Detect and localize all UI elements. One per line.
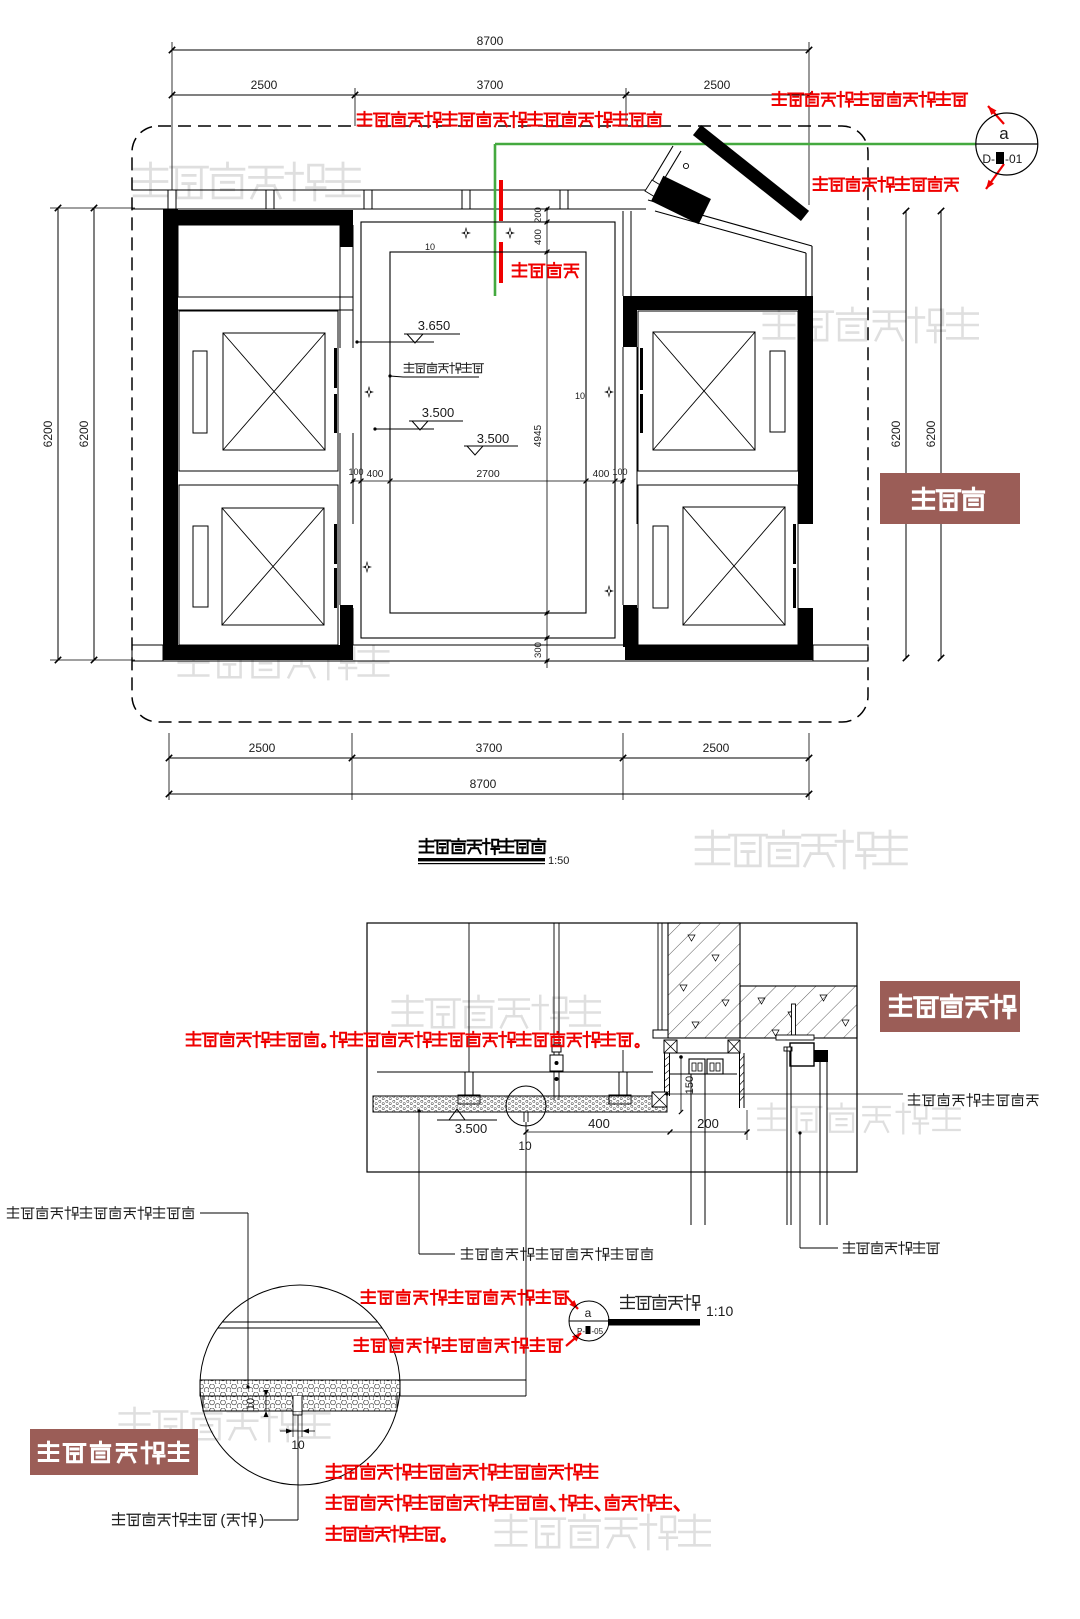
svg-text:3.500: 3.500: [422, 405, 455, 420]
svg-text:3700: 3700: [477, 78, 504, 92]
svg-text:300: 300: [533, 642, 544, 658]
svg-text:D-: D-: [982, 152, 995, 166]
svg-text:8700: 8700: [477, 34, 504, 48]
svg-text:6200: 6200: [889, 420, 903, 447]
svg-text:P-: P-: [577, 1327, 585, 1336]
svg-text:6200: 6200: [924, 420, 938, 447]
svg-text:100: 100: [612, 467, 627, 477]
svg-text:a: a: [585, 1306, 592, 1320]
svg-text:400: 400: [593, 469, 610, 480]
svg-text:4945: 4945: [533, 424, 544, 447]
svg-text:2700: 2700: [476, 468, 500, 480]
svg-text:3700: 3700: [476, 741, 503, 755]
svg-text:2500: 2500: [703, 741, 730, 755]
svg-text:2500: 2500: [251, 78, 278, 92]
svg-text:400: 400: [367, 469, 384, 480]
svg-text:a: a: [999, 124, 1009, 143]
svg-text:3.500: 3.500: [477, 431, 510, 446]
svg-text:3.650: 3.650: [418, 318, 451, 333]
svg-text:150: 150: [684, 1076, 696, 1094]
svg-text:8700: 8700: [470, 777, 497, 791]
svg-text:-05: -05: [592, 1327, 604, 1336]
svg-text:3.500: 3.500: [455, 1121, 488, 1136]
svg-text:1:10: 1:10: [706, 1303, 733, 1319]
svg-text:(: (: [220, 1512, 225, 1529]
svg-text:10: 10: [575, 391, 585, 401]
svg-text:10: 10: [425, 242, 435, 252]
svg-text:6200: 6200: [77, 420, 91, 447]
svg-text:100: 100: [348, 467, 363, 477]
svg-text:2500: 2500: [249, 741, 276, 755]
svg-text:400: 400: [533, 229, 544, 245]
svg-text:2500: 2500: [704, 78, 731, 92]
svg-text:-01: -01: [1005, 152, 1023, 166]
svg-text:200: 200: [697, 1116, 719, 1131]
svg-text:10: 10: [245, 1398, 257, 1410]
svg-text:10: 10: [518, 1139, 532, 1153]
svg-text:200: 200: [533, 207, 544, 223]
svg-text:1:50: 1:50: [548, 855, 569, 867]
svg-text:6200: 6200: [41, 420, 55, 447]
svg-text:): ): [259, 1512, 264, 1529]
svg-text:400: 400: [588, 1116, 610, 1131]
